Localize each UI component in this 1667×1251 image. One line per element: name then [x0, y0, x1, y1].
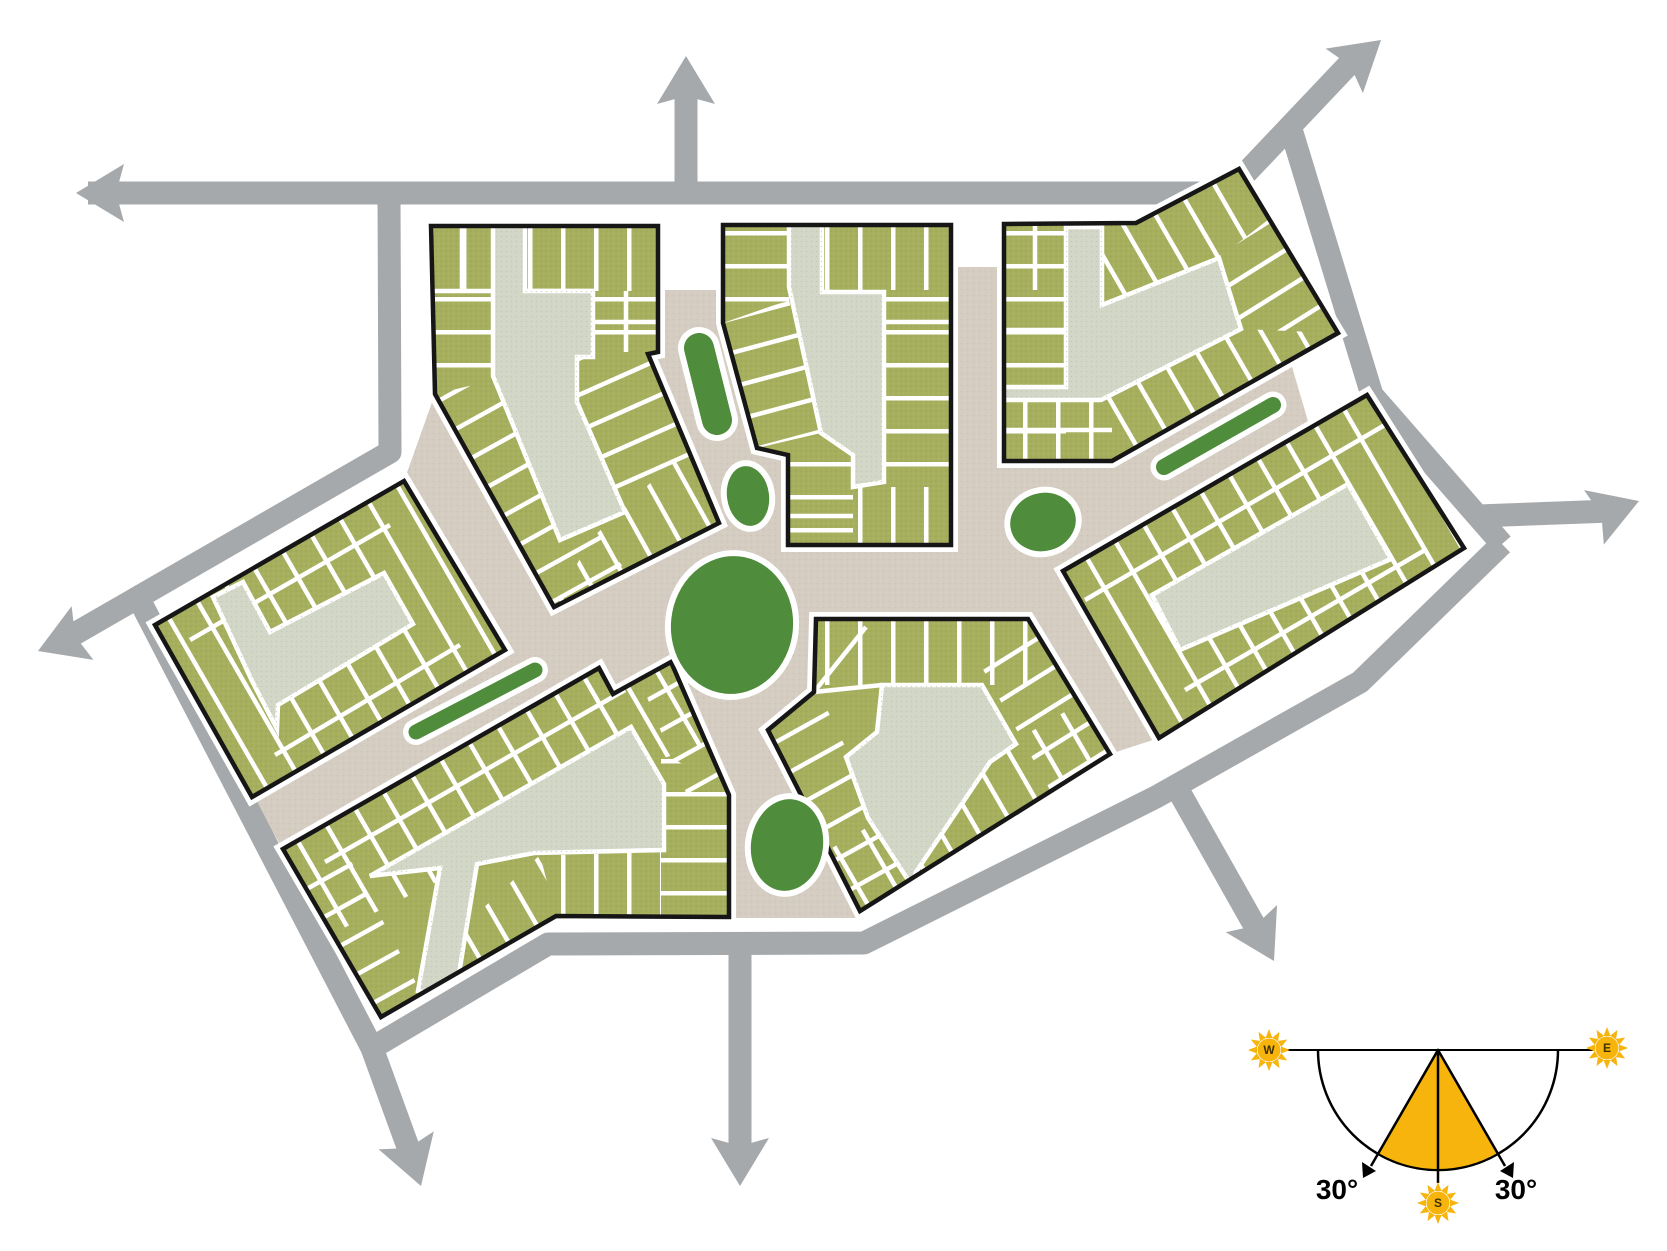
svg-text:S: S: [1434, 1196, 1442, 1210]
svg-text:30°: 30°: [1495, 1174, 1537, 1205]
svg-text:E: E: [1603, 1041, 1611, 1055]
svg-text:W: W: [1263, 1043, 1275, 1057]
svg-text:30°: 30°: [1316, 1174, 1358, 1205]
